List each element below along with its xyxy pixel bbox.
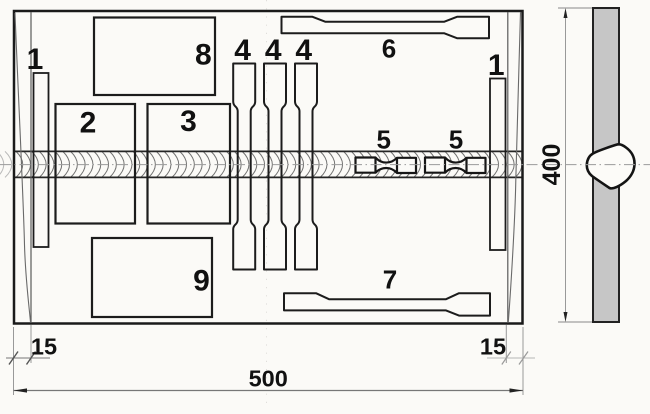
svg-text:4: 4 (265, 34, 282, 67)
svg-text:5: 5 (449, 125, 463, 155)
svg-text:6: 6 (382, 34, 396, 64)
svg-text:500: 500 (249, 366, 288, 392)
svg-text:1: 1 (27, 43, 44, 76)
svg-text:15: 15 (31, 334, 57, 360)
svg-text:3: 3 (180, 105, 197, 138)
svg-text:400: 400 (538, 144, 566, 186)
svg-text:5: 5 (376, 125, 390, 155)
svg-text:9: 9 (193, 265, 210, 298)
svg-text:2: 2 (80, 107, 97, 140)
svg-text:4: 4 (295, 34, 312, 67)
svg-text:4: 4 (234, 34, 251, 67)
svg-text:15: 15 (480, 334, 506, 360)
svg-text:7: 7 (383, 265, 397, 295)
svg-text:1: 1 (488, 49, 505, 82)
svg-text:8: 8 (195, 39, 212, 72)
